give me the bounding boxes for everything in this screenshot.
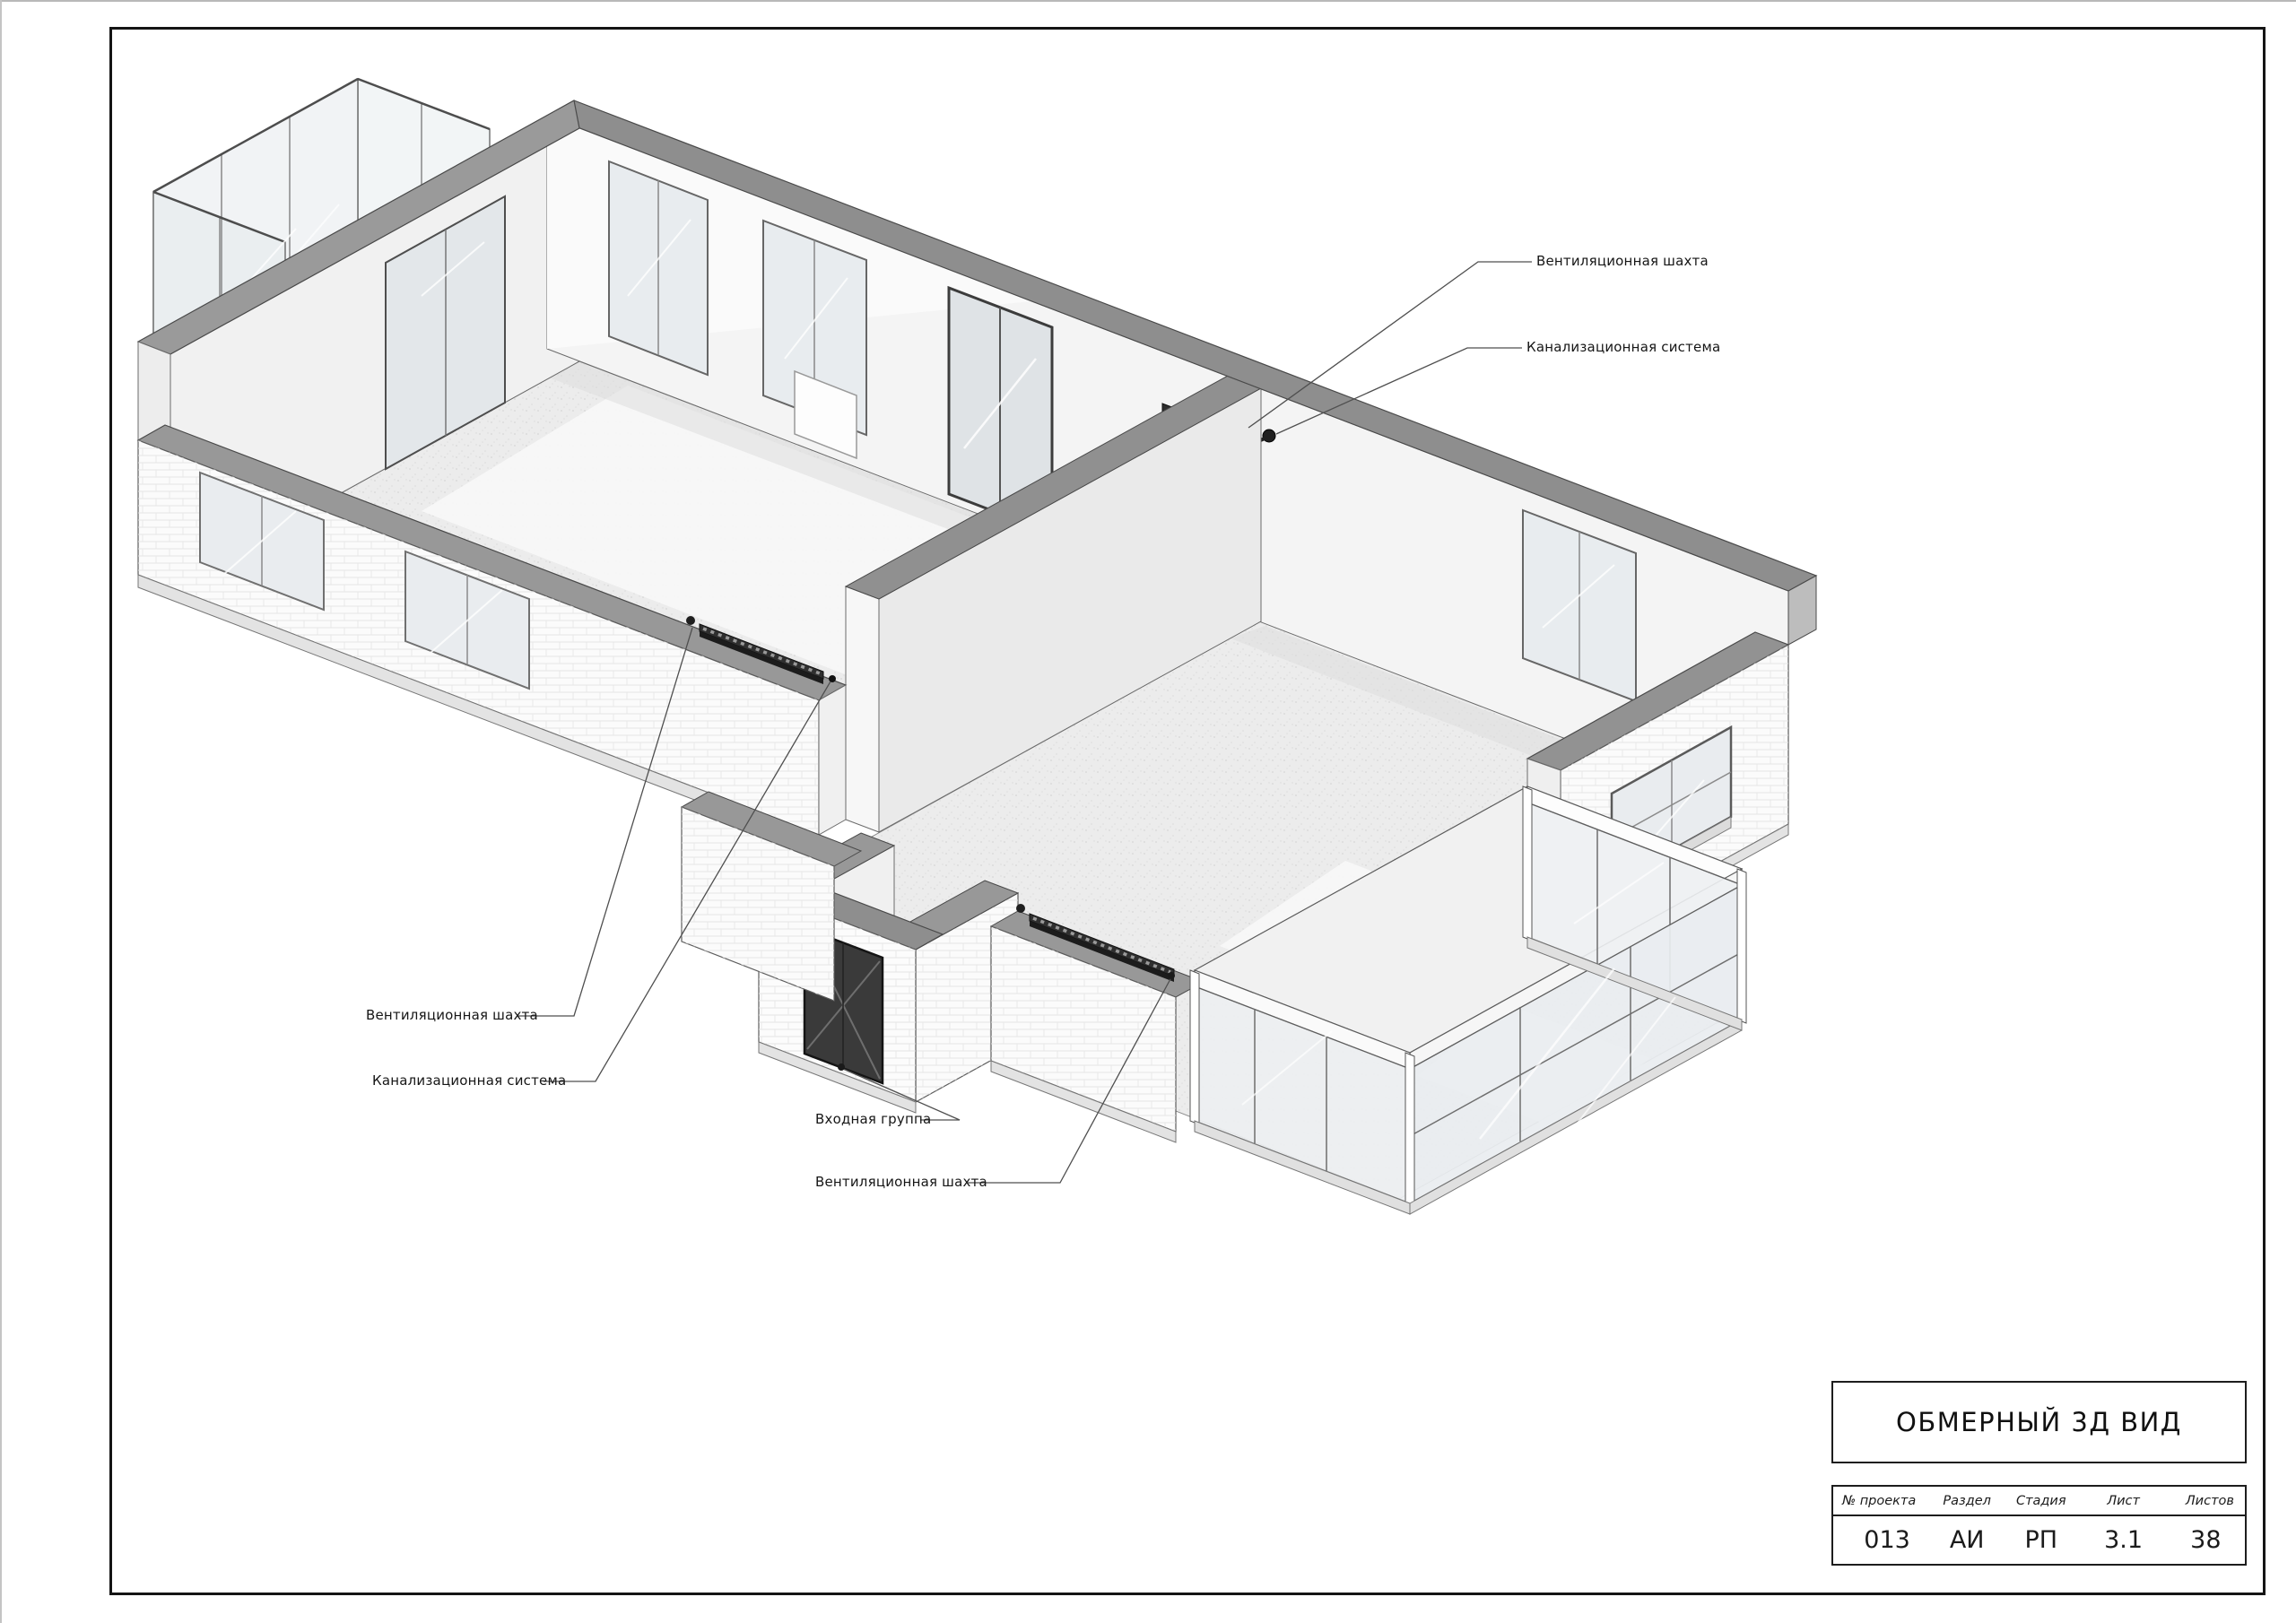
callout-sewer-system-left: Канализационная система	[372, 1072, 566, 1089]
value-sheet: 3.1	[2080, 1526, 2166, 1554]
value-stage: РП	[2002, 1526, 2080, 1554]
callout-label: Вентиляционная шахта	[1536, 253, 1709, 269]
callout-entrance-group: Входная группа	[815, 1111, 931, 1127]
callout-label: Вентиляционная шахта	[815, 1174, 987, 1190]
title-block-table: № проекта Раздел Стадия Лист Листов 013 …	[1831, 1485, 2247, 1566]
callout-label: Канализационная система	[1526, 339, 1720, 355]
header-sheet: Лист	[2080, 1494, 2166, 1508]
callout-vent-shaft-left: Вентиляционная шахта	[366, 1007, 538, 1023]
drawing-title: ОБМЕРНЫЙ 3Д ВИД	[1896, 1407, 2182, 1437]
title-block-values-row: 013 АИ РП 3.1 38	[1833, 1516, 2245, 1564]
header-section: Раздел	[1932, 1494, 2002, 1508]
value-sheets-total: 38	[2167, 1526, 2245, 1554]
drawing-title-box: ОБМЕРНЫЙ 3Д ВИД	[1831, 1381, 2247, 1463]
callout-vent-shaft-bottom: Вентиляционная шахта	[815, 1174, 987, 1190]
header-sheets-total: Листов	[2167, 1494, 2245, 1508]
header-project-number: № проекта	[1833, 1494, 1932, 1508]
callout-label: Вентиляционная шахта	[366, 1007, 538, 1023]
value-project-number: 013	[1833, 1526, 1932, 1554]
sheet: { "sheet": { "background": "#ffffff", "f…	[0, 0, 2296, 1623]
callout-label: Канализационная система	[372, 1072, 566, 1089]
callout-vent-shaft-top-right: Вентиляционная шахта	[1536, 253, 1709, 269]
title-block-header-row: № проекта Раздел Стадия Лист Листов	[1833, 1487, 2245, 1516]
value-section: АИ	[1932, 1526, 2002, 1554]
callout-label: Входная группа	[815, 1111, 931, 1127]
axonometric-3d-view	[0, 0, 2296, 1623]
window-opening	[609, 161, 708, 375]
header-stage: Стадия	[2002, 1494, 2080, 1508]
callout-sewer-system-top-right: Канализационная система	[1526, 339, 1720, 355]
